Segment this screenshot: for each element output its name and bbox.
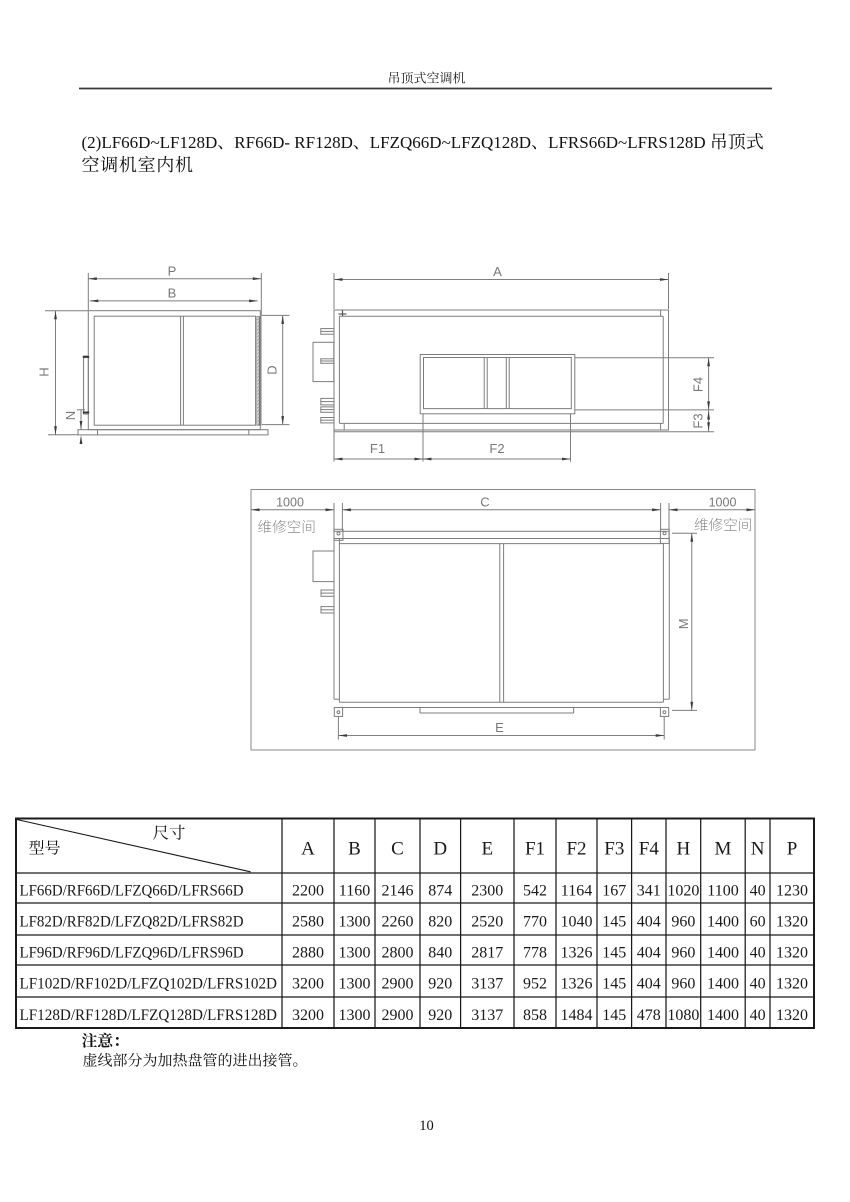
svg-text:404: 404	[637, 945, 661, 962]
svg-text:840: 840	[428, 945, 452, 962]
svg-text:960: 960	[671, 945, 695, 962]
svg-text:LFZQ66D~LFZQ128D: LFZQ66D~LFZQ128D	[370, 133, 531, 152]
svg-text:60: 60	[750, 914, 766, 931]
svg-text:1164: 1164	[561, 883, 592, 900]
svg-text:858: 858	[523, 1007, 547, 1024]
svg-text:D: D	[265, 365, 280, 374]
svg-text:1000: 1000	[709, 495, 737, 509]
svg-text:404: 404	[637, 976, 661, 993]
svg-text:2880: 2880	[292, 945, 324, 962]
svg-text:C: C	[391, 838, 404, 859]
svg-text:F2: F2	[566, 838, 586, 859]
svg-text:404: 404	[637, 914, 661, 931]
svg-text:1400: 1400	[707, 945, 739, 962]
svg-text:1300: 1300	[339, 914, 371, 931]
svg-text:1400: 1400	[707, 914, 739, 931]
svg-text:2817: 2817	[471, 945, 503, 962]
svg-text:145: 145	[602, 945, 626, 962]
svg-text:N: N	[63, 411, 78, 420]
svg-text:1080: 1080	[667, 1007, 699, 1024]
svg-text:145: 145	[602, 1007, 626, 1024]
svg-text:542: 542	[523, 883, 547, 900]
svg-text:LF102D/RF102D/LFZQ102D/LFRS102: LF102D/RF102D/LFZQ102D/LFRS102D	[20, 976, 278, 993]
svg-text:B: B	[168, 286, 177, 301]
svg-text:D: D	[433, 838, 447, 859]
svg-text:920: 920	[428, 976, 452, 993]
svg-text:2300: 2300	[471, 883, 503, 900]
svg-text:952: 952	[523, 976, 547, 993]
svg-text:C: C	[480, 495, 489, 510]
svg-text:1320: 1320	[776, 945, 808, 962]
svg-text:1484: 1484	[561, 1007, 593, 1024]
svg-text:H: H	[37, 367, 52, 376]
svg-text:1320: 1320	[776, 1007, 808, 1024]
svg-text:40: 40	[750, 976, 766, 993]
svg-text:2200: 2200	[292, 883, 324, 900]
svg-text:3200: 3200	[292, 976, 324, 993]
svg-text:E: E	[481, 838, 493, 859]
svg-text:341: 341	[637, 883, 661, 900]
svg-text:F3: F3	[691, 413, 706, 428]
svg-text:920: 920	[428, 1007, 452, 1024]
svg-text:1040: 1040	[561, 914, 593, 931]
svg-text:1320: 1320	[776, 914, 808, 931]
svg-text:P: P	[168, 264, 177, 279]
svg-text:960: 960	[671, 976, 695, 993]
svg-text:LFRS66D~LFRS128D: LFRS66D~LFRS128D	[548, 133, 710, 152]
svg-text:167: 167	[602, 883, 626, 900]
svg-text:H: H	[677, 838, 691, 859]
svg-text:E: E	[495, 720, 504, 735]
svg-text:(2)LF66D~LF128D: (2)LF66D~LF128D	[82, 133, 218, 152]
svg-text:F1: F1	[370, 441, 385, 456]
svg-text:478: 478	[637, 1007, 661, 1024]
svg-text:B: B	[348, 838, 361, 859]
svg-text:3200: 3200	[292, 1007, 324, 1024]
svg-text:145: 145	[602, 976, 626, 993]
svg-text:770: 770	[523, 914, 547, 931]
svg-text:1400: 1400	[707, 1007, 739, 1024]
svg-text:3137: 3137	[471, 1007, 503, 1024]
svg-text:LF82D/RF82D/LFZQ82D/LFRS82D: LF82D/RF82D/LFZQ82D/LFRS82D	[20, 914, 244, 931]
svg-text:40: 40	[750, 945, 766, 962]
svg-text:2580: 2580	[292, 914, 324, 931]
svg-text:2800: 2800	[382, 945, 414, 962]
svg-text:A: A	[493, 264, 502, 279]
svg-text:1300: 1300	[339, 1007, 371, 1024]
svg-text:1320: 1320	[776, 976, 808, 993]
svg-text:1000: 1000	[276, 495, 304, 509]
svg-text:LF128D/RF128D/LFZQ128D/LFRS128: LF128D/RF128D/LFZQ128D/LFRS128D	[20, 1007, 278, 1024]
svg-text:M: M	[715, 838, 732, 859]
svg-text:145: 145	[602, 914, 626, 931]
svg-text:N: N	[751, 838, 765, 859]
svg-text:960: 960	[671, 914, 695, 931]
svg-text:1400: 1400	[707, 976, 739, 993]
svg-text:1100: 1100	[707, 883, 738, 900]
svg-text:P: P	[787, 838, 798, 859]
svg-text:778: 778	[523, 945, 547, 962]
svg-text:2260: 2260	[382, 914, 414, 931]
svg-text:1326: 1326	[561, 976, 593, 993]
svg-text:1300: 1300	[339, 976, 371, 993]
svg-text:F1: F1	[525, 838, 545, 859]
svg-text:2146: 2146	[382, 883, 414, 900]
svg-text:1160: 1160	[339, 883, 370, 900]
svg-text:RF66D- RF128D: RF66D- RF128D	[234, 133, 353, 152]
svg-text:1230: 1230	[776, 883, 808, 900]
svg-text:1300: 1300	[339, 945, 371, 962]
svg-text:40: 40	[750, 1007, 766, 1024]
svg-text:F4: F4	[639, 838, 660, 859]
svg-text:40: 40	[750, 883, 766, 900]
svg-text:820: 820	[428, 914, 452, 931]
svg-text:1020: 1020	[667, 883, 699, 900]
svg-text:LF66D/RF66D/LFZQ66D/LFRS66D: LF66D/RF66D/LFZQ66D/LFRS66D	[20, 883, 244, 900]
svg-text:M: M	[676, 618, 691, 629]
svg-text:2900: 2900	[382, 1007, 414, 1024]
svg-text:A: A	[301, 838, 315, 859]
svg-text:F2: F2	[489, 441, 504, 456]
svg-text:3137: 3137	[471, 976, 503, 993]
svg-text:874: 874	[428, 883, 452, 900]
svg-text:2520: 2520	[471, 914, 503, 931]
svg-text:LF96D/RF96D/LFZQ96D/LFRS96D: LF96D/RF96D/LFZQ96D/LFRS96D	[20, 945, 244, 962]
svg-text:10: 10	[419, 1118, 434, 1134]
svg-text:F3: F3	[604, 838, 624, 859]
svg-text:2900: 2900	[382, 976, 414, 993]
svg-text:F4: F4	[691, 377, 706, 392]
svg-text:1326: 1326	[561, 945, 593, 962]
